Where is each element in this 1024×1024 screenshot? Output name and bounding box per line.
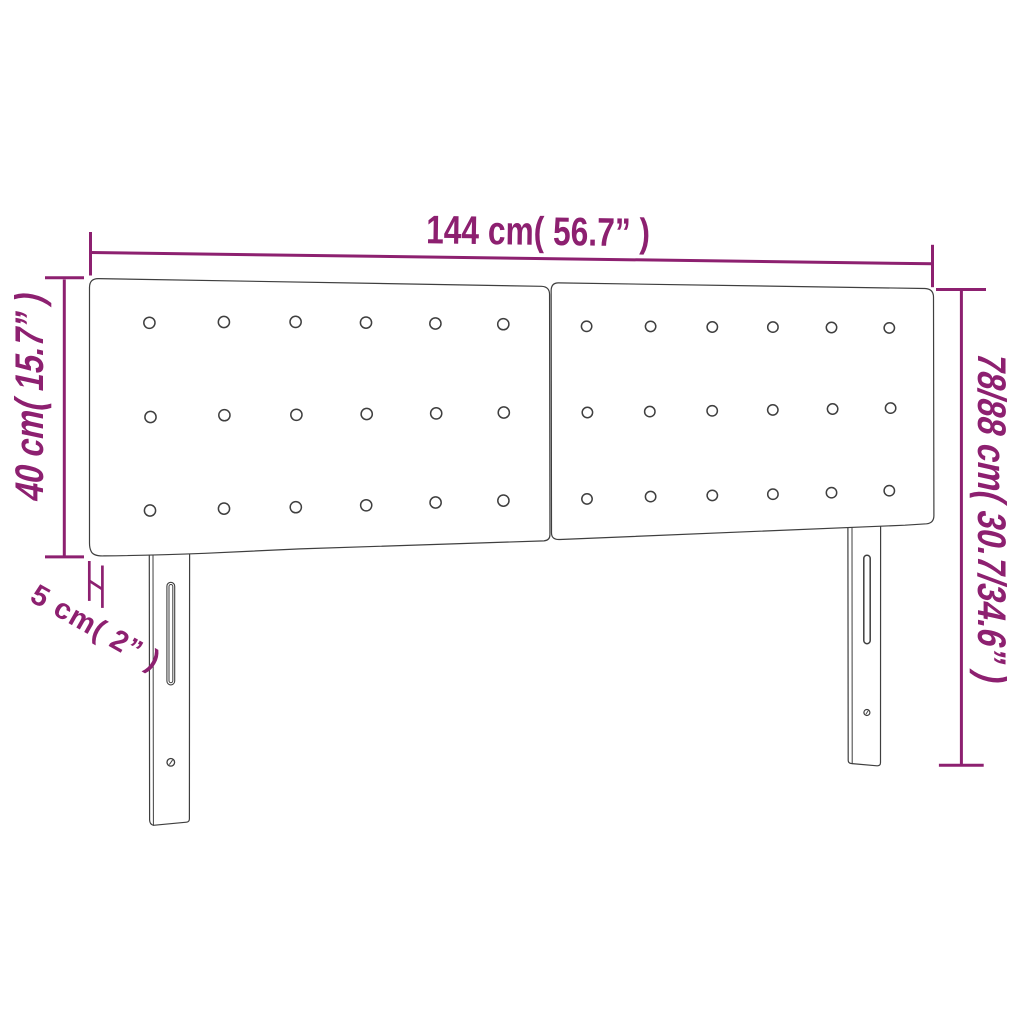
svg-text:40 cm( 15.7” ): 40 cm( 15.7” ) [7, 287, 52, 505]
svg-text:144 cm( 56.7” ): 144 cm( 56.7” ) [426, 207, 650, 256]
svg-text:78/88 cm( 30.7/34.6” ): 78/88 cm( 30.7/34.6” ) [969, 349, 1013, 688]
